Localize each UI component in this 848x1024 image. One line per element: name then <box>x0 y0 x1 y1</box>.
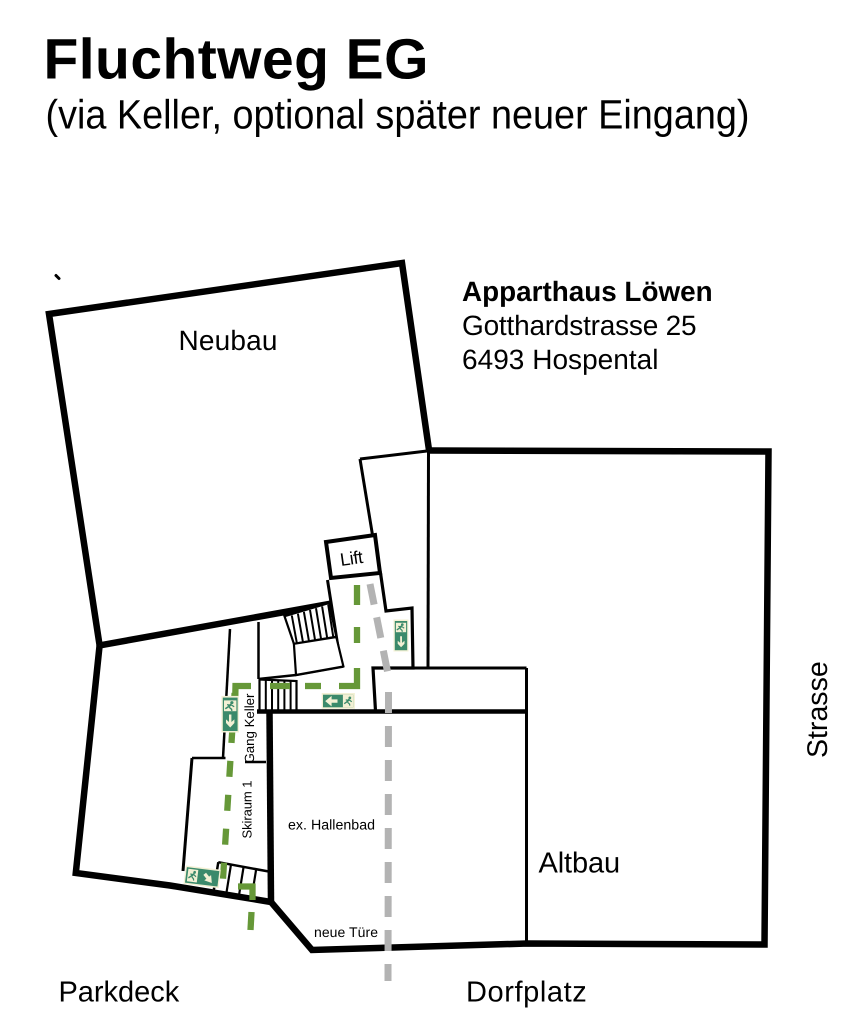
svg-text:Dorfplatz: Dorfplatz <box>466 977 587 1009</box>
svg-text:Gang Keller: Gang Keller <box>242 693 257 764</box>
svg-text:Neubau: Neubau <box>179 325 278 356</box>
svg-text:neue Türe: neue Türe <box>314 924 378 940</box>
svg-text:Strasse: Strasse <box>802 661 834 758</box>
svg-text:Lift: Lift <box>339 547 365 570</box>
svg-text:Parkdeck: Parkdeck <box>59 977 180 1009</box>
svg-text:6493 Hospental: 6493 Hospental <box>462 344 659 375</box>
svg-text:ex. Hallenbad: ex. Hallenbad <box>288 818 375 834</box>
svg-text:Apparthaus Löwen: Apparthaus Löwen <box>462 276 713 307</box>
svg-text:Gotthardstrasse 25: Gotthardstrasse 25 <box>462 310 697 341</box>
svg-text:Fluchtweg EG: Fluchtweg EG <box>44 28 429 92</box>
svg-text:Skiraum 1: Skiraum 1 <box>240 781 255 839</box>
svg-text:Altbau: Altbau <box>539 848 621 880</box>
svg-text:(via Keller, optional später n: (via Keller, optional später neuer Einga… <box>46 92 750 138</box>
